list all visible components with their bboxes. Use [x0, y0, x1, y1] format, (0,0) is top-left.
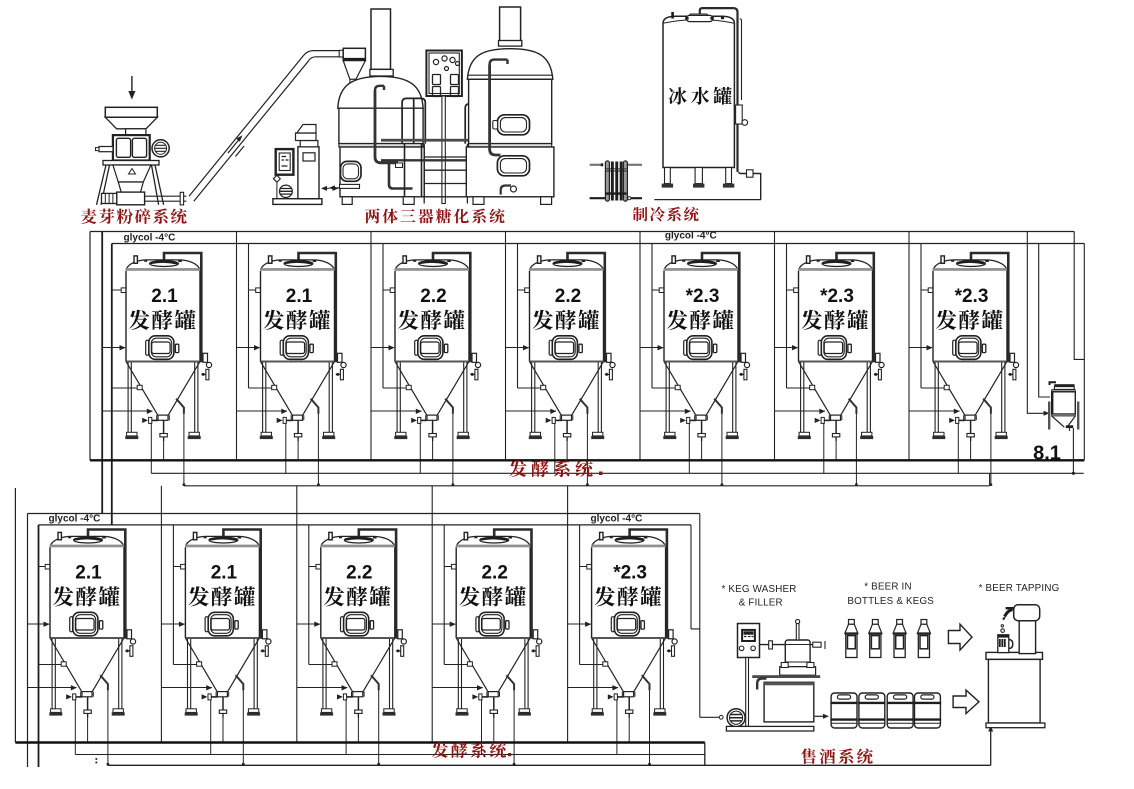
svg-text:glycol -4°C: glycol -4°C	[124, 233, 176, 244]
svg-text:* BEER IN: * BEER IN	[864, 582, 912, 593]
svg-text:& FILLER: & FILLER	[739, 598, 783, 609]
svg-text:glycol -4°C: glycol -4°C	[591, 514, 643, 525]
svg-text:2.1: 2.1	[286, 286, 313, 307]
svg-text:*2.3: *2.3	[955, 286, 989, 307]
svg-text:BOTTLES & KEGS: BOTTLES & KEGS	[847, 596, 934, 607]
svg-text:* KEG WASHER: * KEG WASHER	[722, 584, 797, 595]
svg-text:8.1: 8.1	[1033, 443, 1061, 465]
svg-text:2.1: 2.1	[211, 563, 238, 584]
svg-text:*2.3: *2.3	[686, 286, 720, 307]
svg-text:glycol -4°C: glycol -4°C	[49, 514, 101, 525]
svg-text:2.2: 2.2	[555, 286, 581, 307]
svg-text:2.1: 2.1	[151, 286, 178, 307]
svg-text:2.1: 2.1	[75, 563, 102, 584]
svg-text:*2.3: *2.3	[820, 286, 854, 307]
svg-text:2.2: 2.2	[481, 563, 507, 584]
svg-text:2.2: 2.2	[420, 286, 446, 307]
svg-text:2.2: 2.2	[346, 563, 372, 584]
svg-text:*2.3: *2.3	[613, 563, 647, 584]
svg-text:glycol -4°C: glycol -4°C	[665, 231, 717, 242]
svg-text:* BEER TAPPING: * BEER TAPPING	[979, 583, 1060, 594]
